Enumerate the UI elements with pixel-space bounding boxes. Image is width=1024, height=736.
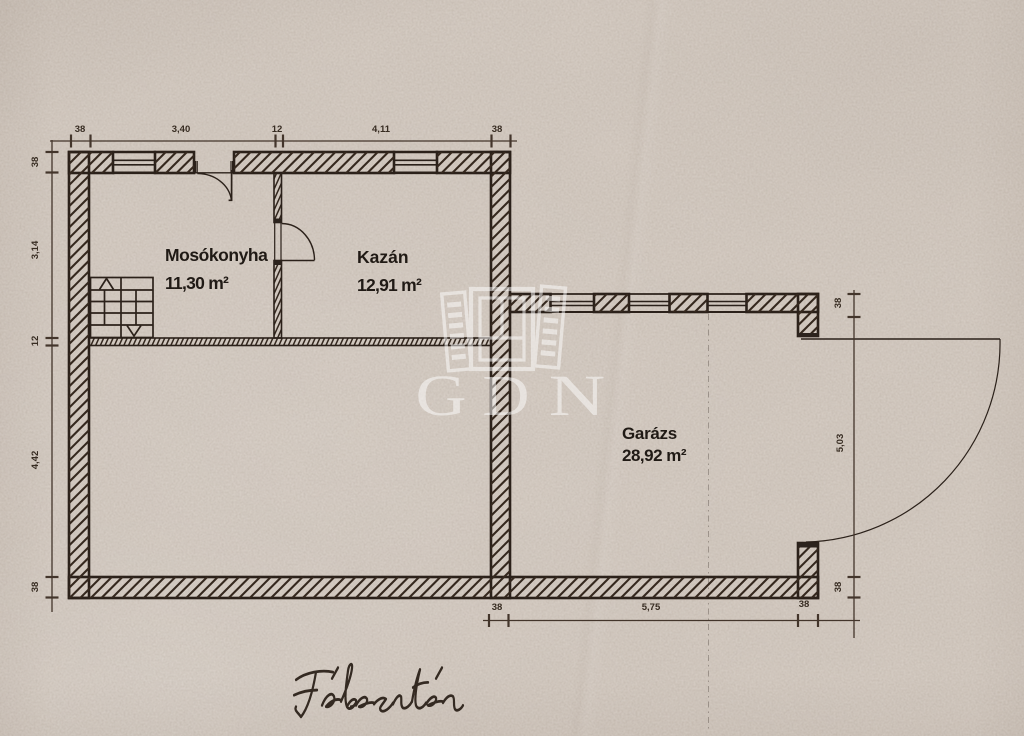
svg-text:G: G <box>415 363 466 428</box>
svg-text:4,11: 4,11 <box>372 124 391 135</box>
svg-text:38: 38 <box>833 582 844 593</box>
svg-text:4,42: 4,42 <box>30 451 41 470</box>
svg-text:12: 12 <box>30 336 41 347</box>
svg-text:38: 38 <box>30 582 41 593</box>
svg-text:28,92 m²: 28,92 m² <box>622 446 687 465</box>
svg-text:N: N <box>549 364 606 428</box>
svg-text:12,91 m²: 12,91 m² <box>357 275 422 295</box>
svg-text:38: 38 <box>30 157 41 168</box>
svg-text:3,40: 3,40 <box>172 124 191 135</box>
svg-text:Garázs: Garázs <box>622 424 677 443</box>
svg-text:38: 38 <box>799 599 810 610</box>
svg-text:Kazán: Kazán <box>357 247 409 267</box>
svg-text:38: 38 <box>833 298 844 309</box>
svg-text:Mosókonyha: Mosókonyha <box>165 245 268 265</box>
svg-text:11,30 m²: 11,30 m² <box>165 273 229 293</box>
svg-text:38: 38 <box>492 124 503 135</box>
svg-text:5,75: 5,75 <box>642 602 661 613</box>
svg-text:3,14: 3,14 <box>30 240 41 259</box>
svg-text:12: 12 <box>272 124 283 135</box>
svg-text:D: D <box>483 364 530 428</box>
svg-text:5,03: 5,03 <box>835 434 846 453</box>
svg-text:38: 38 <box>492 602 503 613</box>
svg-text:38: 38 <box>75 124 86 135</box>
